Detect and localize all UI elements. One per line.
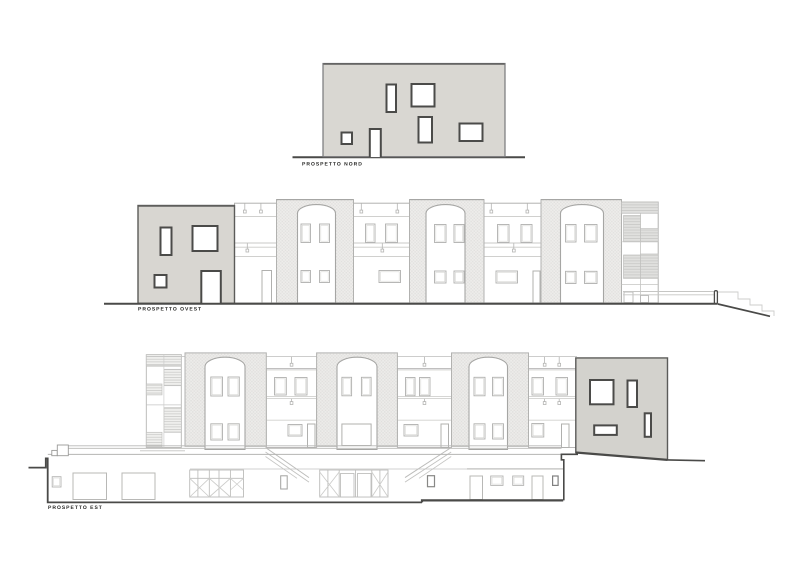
svg-text:PROSPETTO NORD: PROSPETTO NORD bbox=[302, 162, 363, 168]
svg-text:PROSPETTO EST: PROSPETTO EST bbox=[48, 505, 103, 511]
svg-text:PROSPETTO OVEST: PROSPETTO OVEST bbox=[138, 307, 202, 313]
